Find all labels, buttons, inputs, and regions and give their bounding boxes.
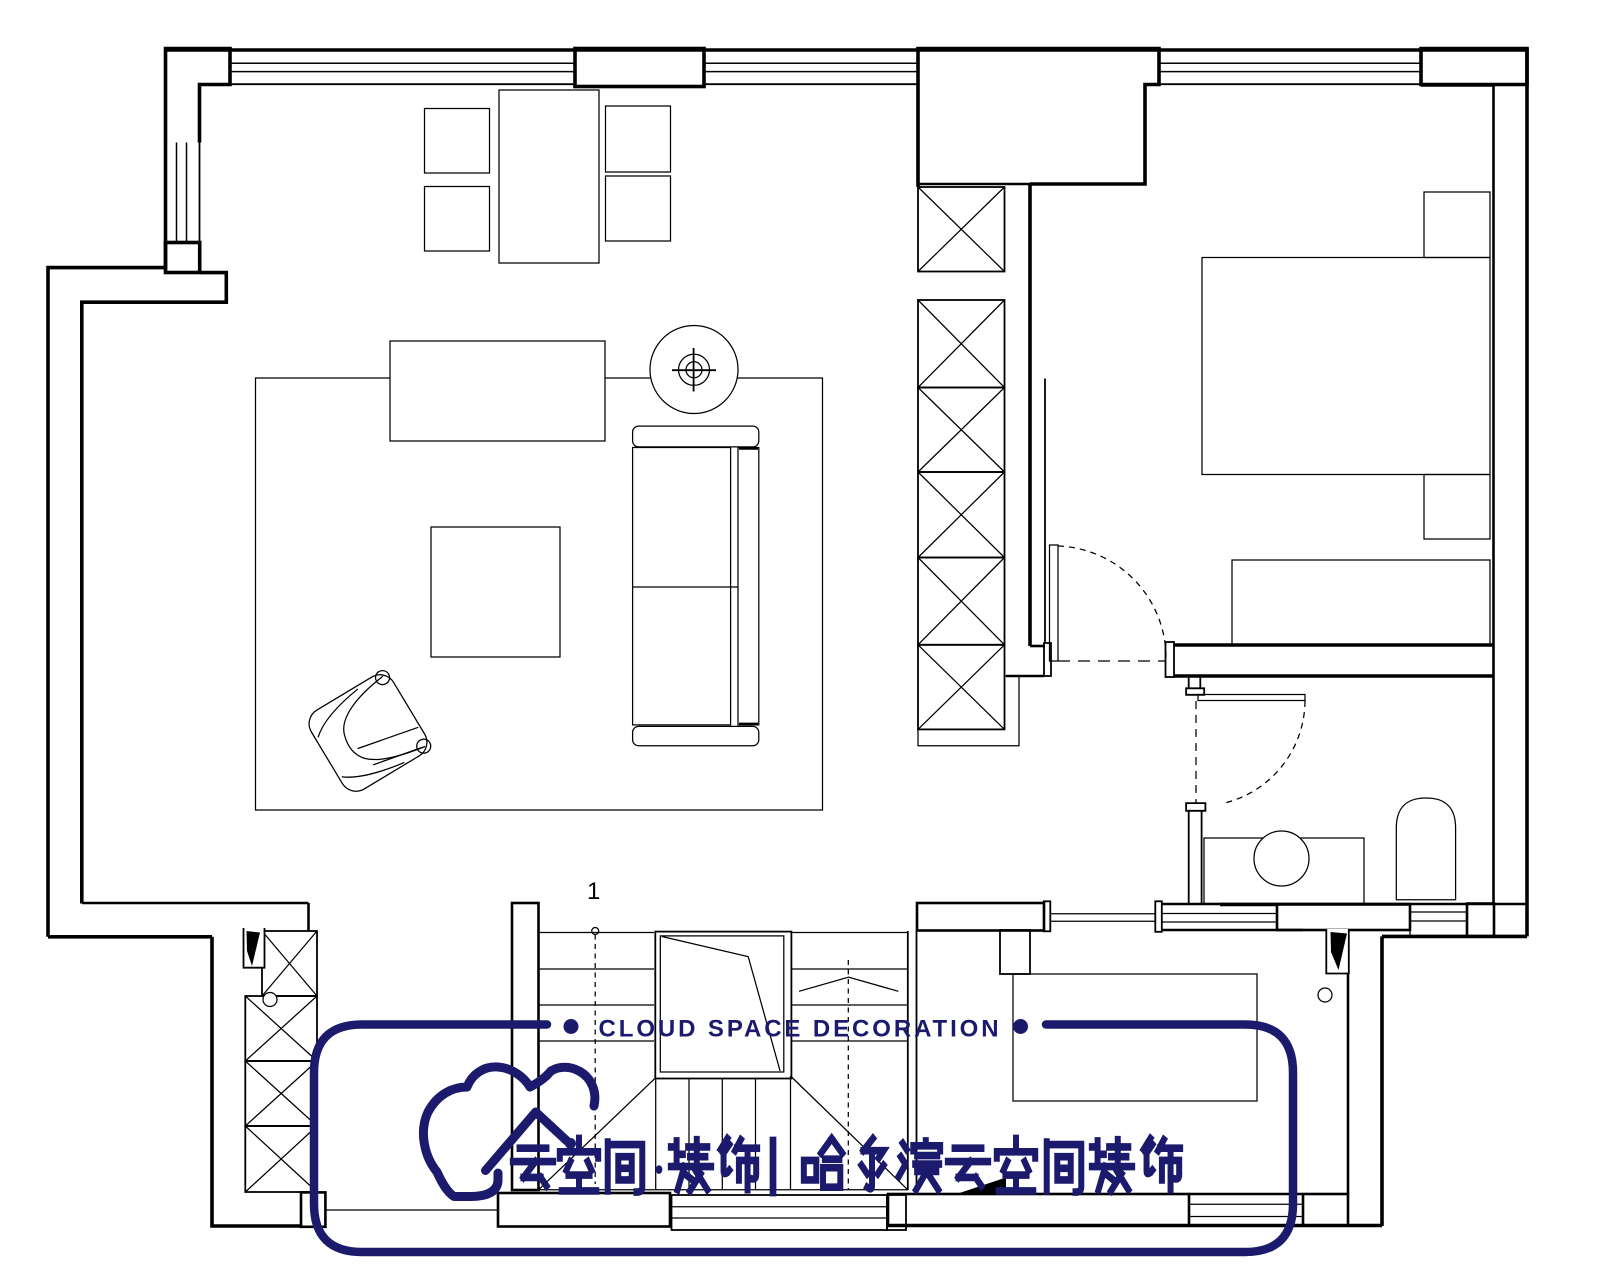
svg-text:1: 1 xyxy=(587,878,600,905)
svg-text:CLOUD SPACE DECORATION: CLOUD SPACE DECORATION xyxy=(599,1016,1002,1043)
